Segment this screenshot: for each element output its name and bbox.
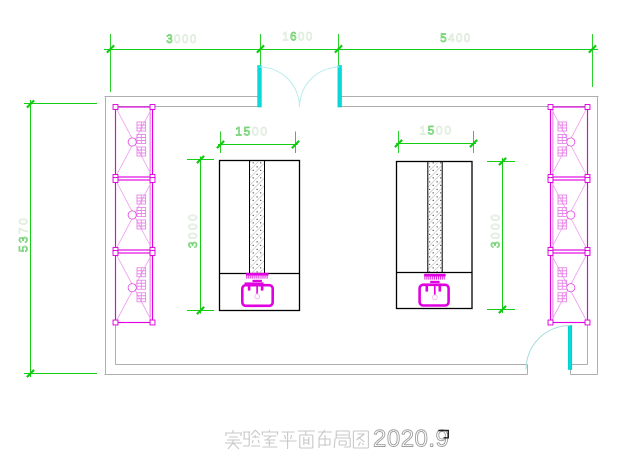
svg-text:2020.9: 2020.9 <box>373 426 449 453</box>
svg-text:1500: 1500 <box>235 125 269 139</box>
svg-text:5370: 5370 <box>17 216 31 252</box>
svg-text:5400: 5400 <box>440 33 472 45</box>
svg-text:3000: 3000 <box>166 34 198 46</box>
svg-text:3000: 3000 <box>186 212 200 248</box>
svg-text:3000: 3000 <box>488 212 502 248</box>
svg-text:1500: 1500 <box>419 124 453 138</box>
svg-text:1600: 1600 <box>282 32 314 44</box>
